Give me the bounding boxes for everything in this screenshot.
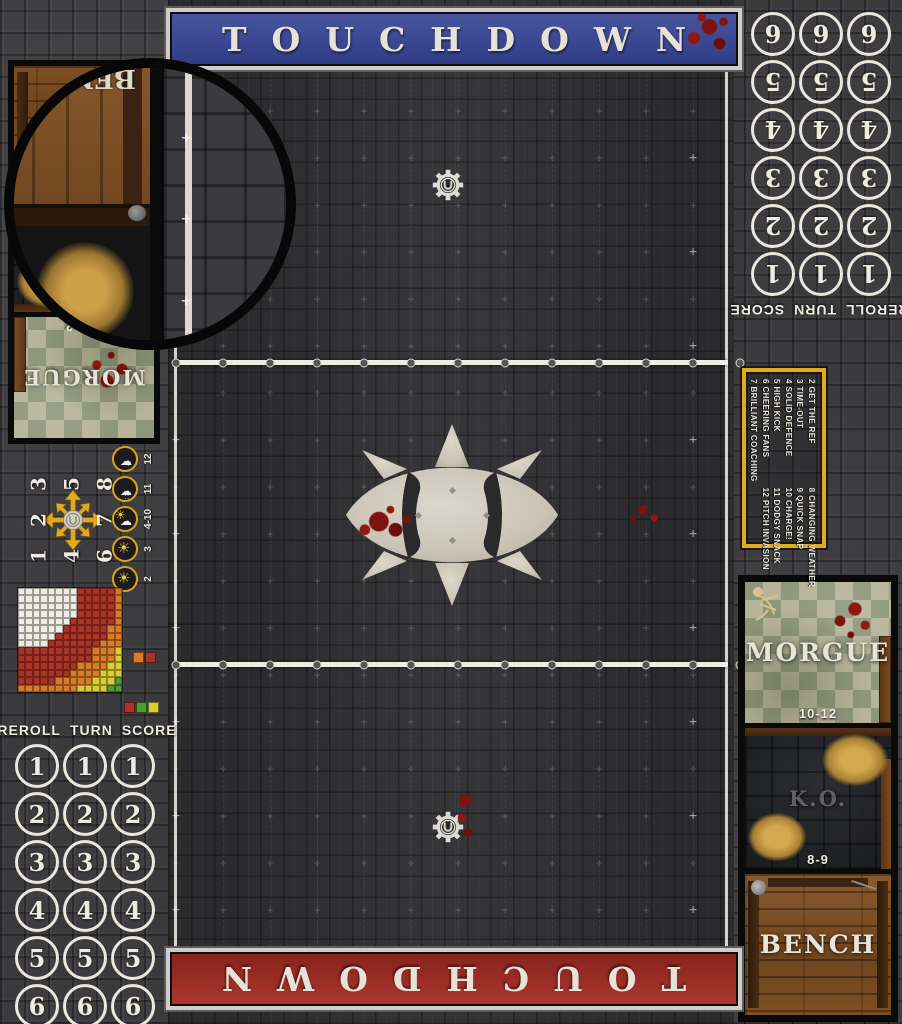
sun-icon: ☀ [117,571,130,586]
range-cell [55,618,62,625]
track-header-score: SCORE [122,722,177,738]
range-cell [100,685,107,692]
range-cell [85,640,92,647]
track-number: 2 [751,204,795,248]
range-cell [33,633,40,640]
track-header-turn: TURN [70,722,113,738]
range-cell [25,595,32,602]
line-marker [689,660,698,669]
range-cell [115,625,122,632]
line-marker [172,358,181,367]
bench-label: BENCH [760,930,877,959]
track-grid: 111222333444555666 [12,744,162,1024]
range-cell [25,633,32,640]
range-cell [77,603,84,610]
range-cell [18,603,25,610]
range-cell [100,662,107,669]
range-cell [77,640,84,647]
kickoff-entry: 8 CHANGING WEATHER [806,488,818,588]
ko-range: 8-9 [745,852,891,867]
range-cell [18,647,25,654]
range-cell [70,588,77,595]
track-number: 3 [751,156,795,200]
sideline-right [725,64,728,948]
grid-cross: + [173,575,180,588]
track-number: 4 [751,108,795,152]
range-cell [40,640,47,647]
range-cell [55,655,62,662]
line-marker [313,660,322,669]
range-legend-cell [148,702,159,713]
range-cell [100,610,107,617]
line-marker [548,660,557,669]
range-cell [55,677,62,684]
range-cell [92,610,99,617]
range-cell [115,633,122,640]
range-cell [70,640,77,647]
range-cell [63,618,70,625]
track-number: 3 [847,156,891,200]
range-cell [33,647,40,654]
range-ruler-chart [18,588,122,692]
line-marker [595,358,604,367]
line-marker [454,358,463,367]
range-cell [33,685,40,692]
grid-cross: + [181,128,191,147]
wood-plank [745,728,891,736]
range-cell [107,647,114,654]
range-cell [85,633,92,640]
line-marker [454,660,463,669]
range-cell [115,588,122,595]
range-cell [25,670,32,677]
grid-column-line [646,64,647,948]
range-cell [115,662,122,669]
range-cell [55,647,62,654]
range-cell [48,603,55,610]
range-cell [55,625,62,632]
range-cell [33,588,40,595]
range-cell [33,662,40,669]
range-cell [40,625,47,632]
range-cell [40,595,47,602]
range-cell [70,633,77,640]
range-cell [77,588,84,595]
kickoff-entry: 12 PITCH INVASION [760,488,772,588]
range-cell [100,647,107,654]
range-cell [63,625,70,632]
track-number: 6 [63,984,107,1024]
track-number: 5 [15,936,59,980]
range-cell [63,640,70,647]
track-number: 6 [847,12,891,56]
track-number: 5 [799,60,843,104]
range-cell [33,618,40,625]
range-cell [40,618,47,625]
line-marker [172,660,181,669]
track-number: 5 [847,60,891,104]
ko-zone: K.O. 8-9 [745,723,891,869]
range-cell [85,685,92,692]
grid-cross: + [172,433,180,448]
range-cell [115,618,122,625]
range-cell [85,647,92,654]
range-cell [107,685,114,692]
line-marker [360,358,369,367]
range-cell [18,625,25,632]
range-cell [70,655,77,662]
range-cell [18,640,25,647]
range-cell [18,588,25,595]
range-cell [48,588,55,595]
range-cell [107,610,114,617]
range-cell [107,640,114,647]
touchdown-banner-top-label: TOUCHDOWN [197,20,711,59]
range-cell [92,588,99,595]
range-cell [25,640,32,647]
touchdown-banner-bottom: TOUCHDOWN [170,952,738,1006]
range-cell [55,588,62,595]
range-cell [85,662,92,669]
range-cell [33,603,40,610]
kickoff-table: 2 GET THE REF3 TIME-OUT4 SOLID DEFENCE5 … [742,368,826,548]
grid-cross: + [172,809,180,824]
range-cell [63,677,70,684]
range-cell [115,670,122,677]
range-cell [85,618,92,625]
range-legend-cell [124,702,135,713]
range-cell [107,595,114,602]
skeleton-icon [748,584,792,624]
scatter-number: 4 [54,540,90,573]
range-cell [48,625,55,632]
track-header-score: SCORE [729,302,784,318]
track-number: 2 [63,792,107,836]
range-cell [40,647,47,654]
weather-range-label: 2 [135,571,161,587]
track-number: 6 [111,984,155,1024]
range-chart-legend [124,702,159,713]
range-cell [70,662,77,669]
weather-entry: ☁::11 [112,476,162,502]
range-cell [48,595,55,602]
range-cell [92,662,99,669]
line-marker [689,358,698,367]
range-cell [100,618,107,625]
weather-entry: ☁❄12 [112,446,162,472]
track-number: 2 [15,792,59,836]
grid-cross: + [172,903,180,918]
range-cell [107,670,114,677]
kickoff-entry: 3 TIME-OUT [794,379,806,482]
range-cell [48,670,55,677]
range-cell [18,618,25,625]
kickoff-table-frame: 2 GET THE REF3 TIME-OUT4 SOLID DEFENCE5 … [742,368,826,548]
bucket-icon [751,880,766,895]
track-number: 1 [751,252,795,296]
range-cell [100,633,107,640]
wood-post [748,881,759,1008]
weather-range-label: 3 [135,541,161,557]
grid-cross: + [172,527,180,542]
kickoff-entry: 2 GET THE REF [806,379,818,482]
bench-zone: BENCH [745,869,891,1015]
range-cell [92,625,99,632]
range-cell [100,640,107,647]
range-cell [25,662,32,669]
range-cell [18,677,25,684]
track-number: 3 [111,840,155,884]
range-cell [77,595,84,602]
track-bottom-left: REROLL TURN SCORE 111222333444555666 [12,722,162,1024]
range-cell [70,610,77,617]
track-number: 5 [111,936,155,980]
grid-cross: + [173,763,180,776]
range-cell [115,647,122,654]
range-cell [107,603,114,610]
range-cell [92,655,99,662]
line-marker [736,358,745,367]
range-cell [70,625,77,632]
range-cell [18,633,25,640]
scatter-number: 5 [54,468,90,501]
lens-dugout-frame [150,58,164,350]
range-cell [100,670,107,677]
range-cell [70,685,77,692]
track-number: 1 [799,252,843,296]
line-marker [407,660,416,669]
range-cell [48,633,55,640]
range-cell [33,625,40,632]
range-cell [48,662,55,669]
range-cell [85,655,92,662]
line-marker [407,358,416,367]
track-number: 5 [63,936,107,980]
range-cell [25,625,32,632]
grid-cross: + [173,669,180,682]
range-cell [77,685,84,692]
track-number: 4 [799,108,843,152]
range-cell [48,685,55,692]
range-cell [48,618,55,625]
range-cell [92,603,99,610]
range-cell [40,685,47,692]
weather-table: ☁❄12☁::11☀☁4-10☀3☀2 [112,446,162,596]
track-number: 6 [751,12,795,56]
range-cell [63,670,70,677]
range-cell [115,685,122,692]
grid-cross: + [181,291,191,310]
track-number: 1 [847,252,891,296]
track-number: 2 [799,204,843,248]
range-cell [25,588,32,595]
range-cell [25,677,32,684]
kickoff-entry: 6 CHEERING FANS [760,379,772,482]
range-legend-cell [133,652,144,663]
range-cell [70,603,77,610]
track-grid: 111222333444555666 [744,12,894,296]
range-cell [77,633,84,640]
lens-hay-pile [36,242,134,340]
range-cell [100,625,107,632]
range-cell [25,647,32,654]
range-cell [48,655,55,662]
grid-column-line [599,64,600,948]
range-cell [100,677,107,684]
range-cell [92,670,99,677]
line-marker [595,660,604,669]
range-cell [92,633,99,640]
range-cell [85,670,92,677]
range-cell [40,588,47,595]
line-marker [501,660,510,669]
range-cell [70,677,77,684]
gear-logo-icon [429,808,467,846]
range-cell [70,618,77,625]
range-cell [85,677,92,684]
range-cell [55,603,62,610]
kickoff-entry: 11 DODGY SNACK [771,488,783,588]
scatter-number: 3 [21,468,57,501]
range-cell [18,610,25,617]
range-cell [18,655,25,662]
track-number: 4 [847,108,891,152]
range-cell [25,610,32,617]
range-cell [33,655,40,662]
range-legend-cell [136,702,147,713]
range-cell [63,588,70,595]
track-number: 1 [15,744,59,788]
range-cell [70,670,77,677]
track-number: 4 [63,888,107,932]
grid-column-line [693,64,694,948]
range-cell [55,640,62,647]
morgue-label: MORGUE [746,638,890,667]
range-cell [77,655,84,662]
kickoff-column-1: 2 GET THE REF3 TIME-OUT4 SOLID DEFENCE5 … [751,379,817,482]
line-marker [360,660,369,669]
range-cell [92,640,99,647]
range-cell [40,670,47,677]
grid-cross: + [172,621,180,636]
scatter-number: 2 [21,504,57,537]
range-cell [33,677,40,684]
morgue-label: MORGUE [22,365,145,390]
line-marker [313,358,322,367]
range-cell [55,685,62,692]
range-cell [107,588,114,595]
range-cell [70,647,77,654]
track-number: 3 [799,156,843,200]
hay-pile [822,734,888,786]
line-marker [219,358,228,367]
range-cell [92,618,99,625]
scatter-number: 1 [21,540,57,573]
range-cell [107,677,114,684]
range-cell [107,625,114,632]
weather-range-label: 11 [135,481,161,497]
range-cell [77,618,84,625]
range-cell [18,685,25,692]
ko-label: K.O. [789,786,847,811]
grid-cross: + [173,387,180,400]
range-cell [107,662,114,669]
line-marker [219,660,228,669]
range-cell [55,633,62,640]
range-cell [40,662,47,669]
range-cell [63,603,70,610]
grid-column-line [317,64,318,948]
line-marker [266,660,275,669]
line-marker [501,358,510,367]
range-cell [85,625,92,632]
kickoff-column-2: 8 CHANGING WEATHER9 QUICK SNAP10 CHARGE!… [751,488,817,588]
rain-cloud-icon: :: [124,493,129,501]
range-cell [92,685,99,692]
wood-post [877,881,888,1008]
weather-entry: ☀3 [112,536,162,562]
range-cell [77,625,84,632]
range-cell [92,647,99,654]
range-cell [63,685,70,692]
kickoff-entry: 5 HIGH KICK [771,379,783,482]
track-number: 6 [15,984,59,1024]
range-cell [115,655,122,662]
track-header: REROLL TURN SCORE [744,302,894,318]
touchdown-banner-top: TOUCHDOWN [170,12,738,66]
range-cell [85,603,92,610]
lens-bench-label: BENCH [25,63,136,93]
kickoff-entry: 4 SOLID DEFENCE [783,379,795,482]
track-number: 6 [799,12,843,56]
blood-bowl-game-mat: ++++++++++++++++++++++++++++++++++++++++… [0,0,902,1024]
range-cell [18,662,25,669]
kickoff-entry: 10 CHARGE! [783,488,795,588]
range-cell [55,595,62,602]
range-cell [55,662,62,669]
range-cell [18,595,25,602]
track-number: 2 [111,792,155,836]
grid-cross: + [173,481,180,494]
range-cell [48,610,55,617]
range-legend-cell [145,652,156,663]
range-cell [115,595,122,602]
line-marker [548,358,557,367]
range-cell [25,655,32,662]
range-cell [115,677,122,684]
line-marker [266,358,275,367]
weather-entry: ☀☁4-10 [112,506,162,532]
range-cell [92,677,99,684]
range-cell [25,618,32,625]
range-cell [25,603,32,610]
range-cell [63,655,70,662]
snow-cloud-icon: ❄ [125,460,132,468]
range-cell [100,588,107,595]
track-header-reroll: REROLL [845,302,902,318]
range-cell [25,685,32,692]
range-cell [100,655,107,662]
track-number: 1 [63,744,107,788]
range-cell [77,610,84,617]
range-cell [115,610,122,617]
track-number: 3 [63,840,107,884]
range-cell [40,655,47,662]
range-cell [18,670,25,677]
range-cell [77,662,84,669]
range-cell [107,618,114,625]
range-cell [63,662,70,669]
